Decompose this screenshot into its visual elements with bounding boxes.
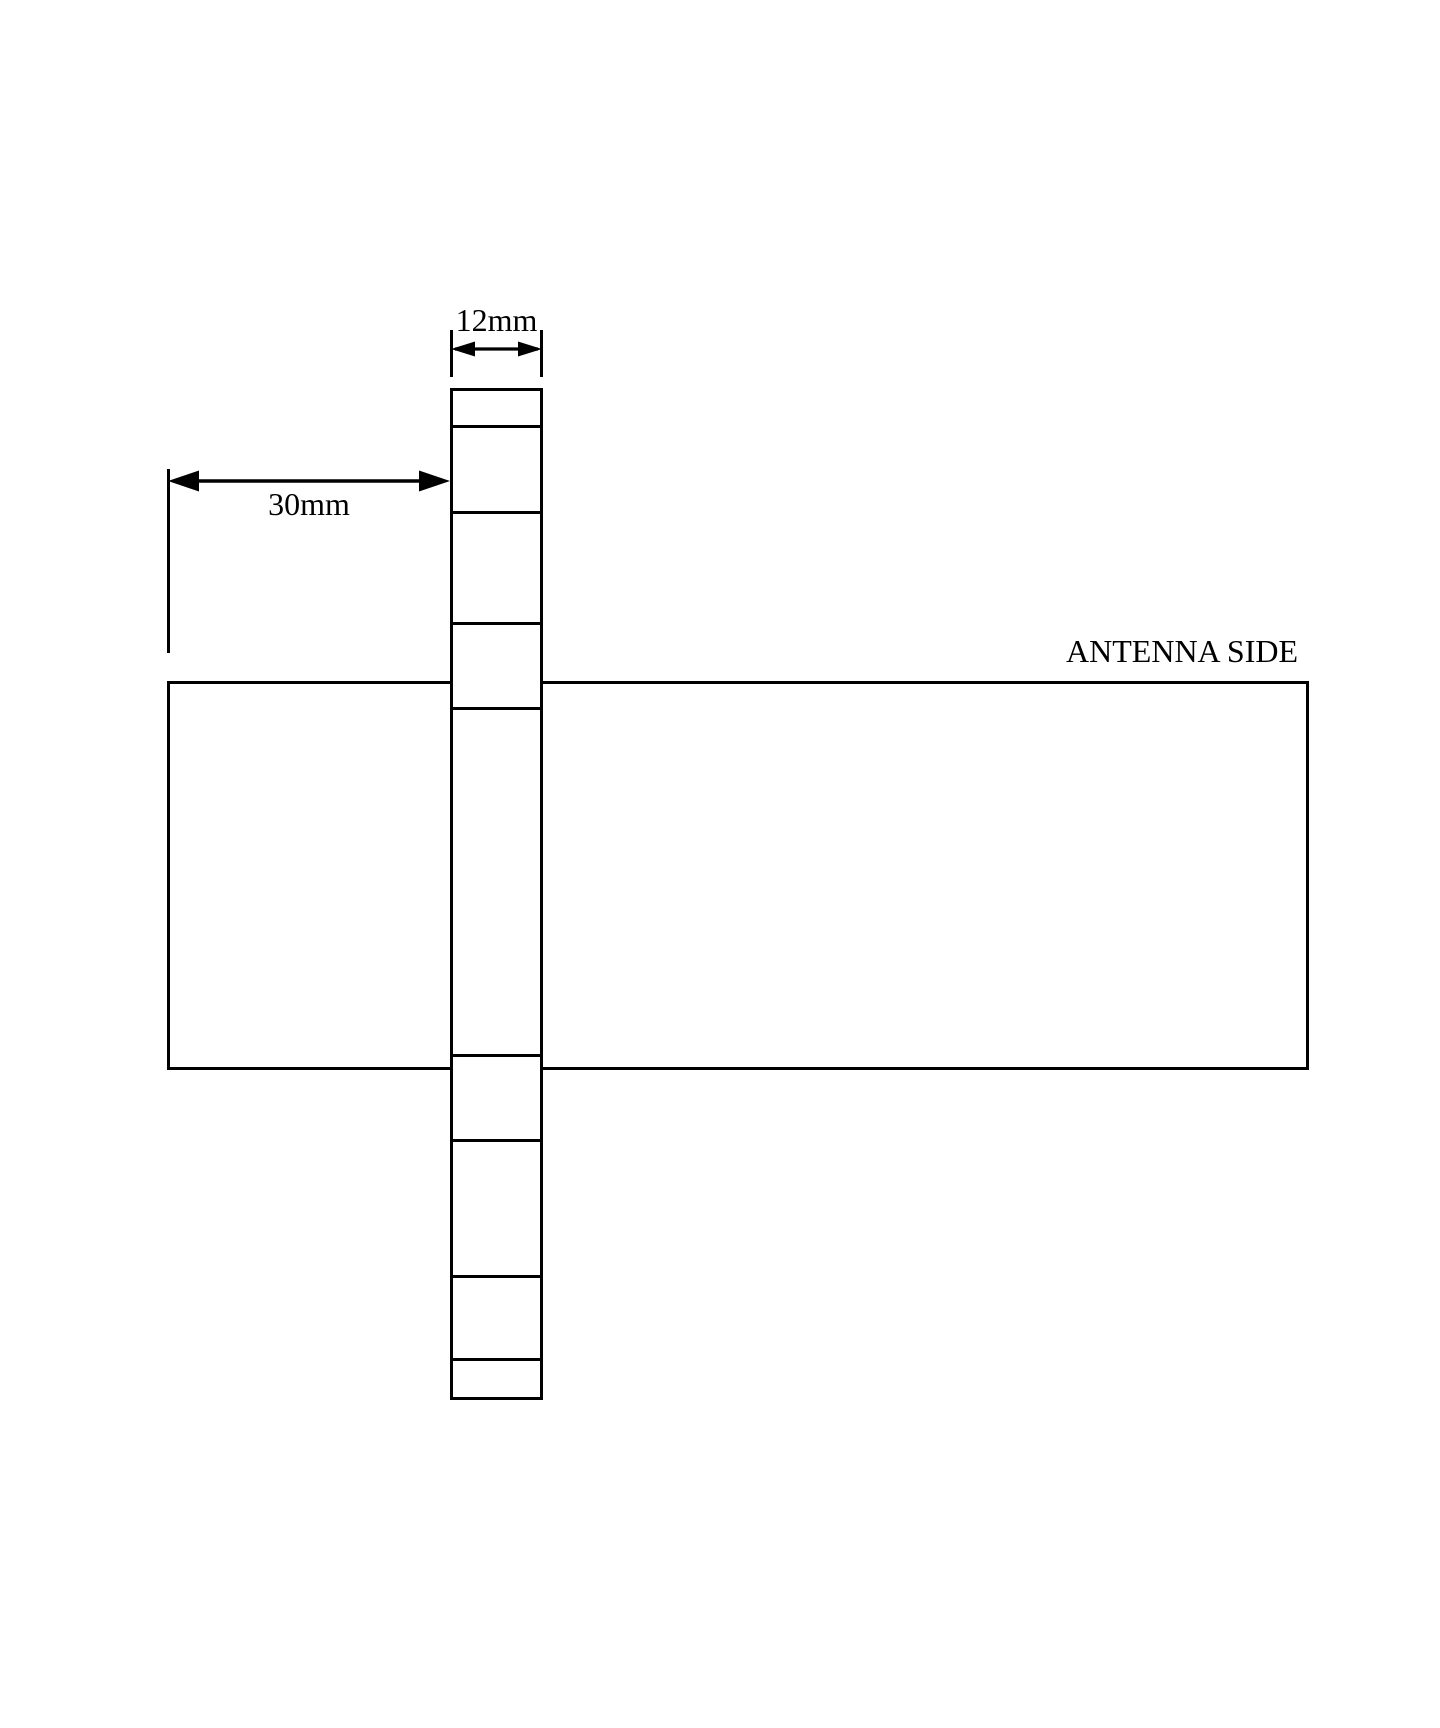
strip-divider-line: [453, 425, 540, 428]
strip-divider-line: [453, 622, 540, 625]
dim-30mm-label: 30mm: [168, 488, 450, 520]
strip-divider-line: [453, 511, 540, 514]
strip-divider-line: [453, 1358, 540, 1361]
strip-divider-line: [453, 1275, 540, 1278]
dim-12mm-label: 12mm: [450, 304, 543, 336]
antenna-board-rect: [167, 681, 1309, 1070]
antenna-side-label: ANTENNA SIDE: [1066, 635, 1298, 667]
strip-divider-line: [453, 707, 540, 710]
segmented-strip-rect: [450, 388, 543, 1400]
dim-12mm-double-arrow-icon: [450, 337, 543, 361]
drawing-canvas: 12mm 30mm ANTENNA SIDE: [0, 0, 1440, 1728]
strip-divider-line: [453, 1139, 540, 1142]
strip-divider-line: [453, 1054, 540, 1057]
